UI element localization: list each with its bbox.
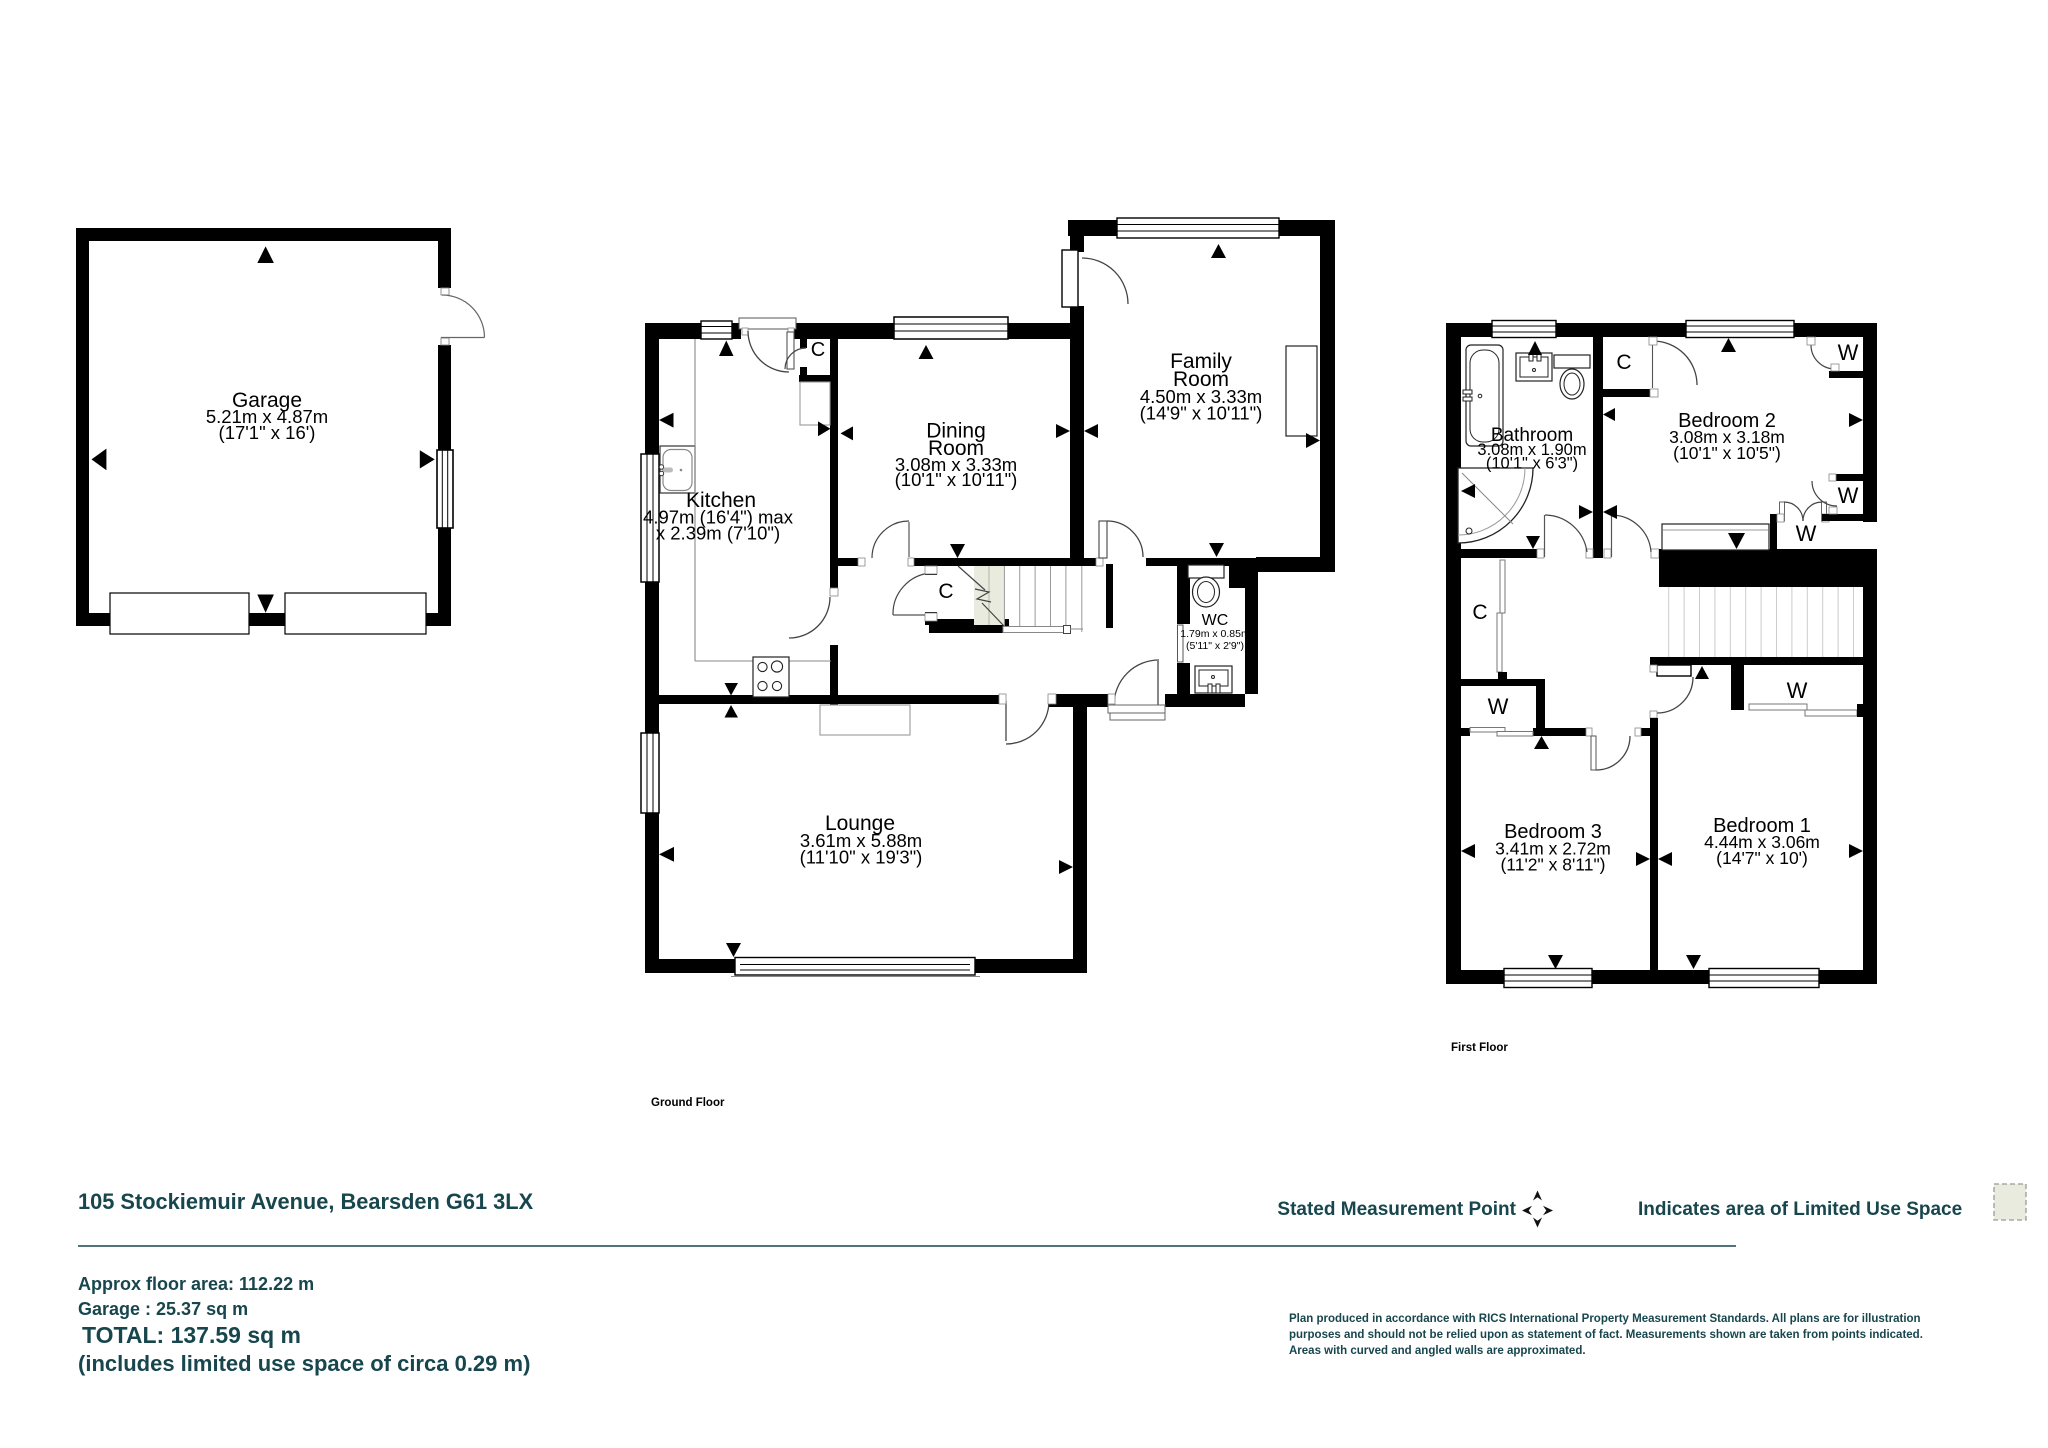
svg-text:W: W [1488, 694, 1509, 719]
svg-text:C: C [811, 339, 825, 361]
svg-text:C: C [1472, 601, 1487, 624]
svg-text:Plan produced in accordance w: Plan produced in accordance with RICS In… [1289, 1313, 1921, 1325]
svg-text:C: C [1616, 351, 1631, 374]
svg-text:TOTAL: 137.59 sq m: TOTAL: 137.59 sq m [82, 1322, 301, 1348]
svg-text:(10'1" x 10'11"): (10'1" x 10'11") [895, 469, 1018, 490]
svg-text:(14'9" x 10'11"): (14'9" x 10'11") [1140, 403, 1263, 424]
svg-text:105 Stockiemuir Avenue, Bearsd: 105 Stockiemuir Avenue, Bearsden G61 3LX [78, 1189, 534, 1214]
svg-text:Stated Measurement Point: Stated Measurement Point [1277, 1199, 1516, 1220]
svg-text:Ground Floor: Ground Floor [651, 1097, 725, 1109]
svg-text:W: W [1796, 521, 1817, 546]
svg-text:(includes limited use space of: (includes limited use space of circa 0.2… [78, 1351, 530, 1376]
svg-text:W: W [1787, 678, 1808, 703]
svg-text:W: W [1838, 340, 1859, 365]
svg-text:C: C [938, 580, 953, 603]
svg-text:(17'1" x 16'): (17'1" x 16') [219, 422, 316, 443]
svg-text:(5'11" x 2'9"): (5'11" x 2'9") [1186, 640, 1244, 652]
svg-text:x 2.39m (7'10"): x 2.39m (7'10") [656, 523, 780, 544]
svg-text:Garage : 25.37 sq m: Garage : 25.37 sq m [78, 1299, 248, 1319]
svg-text:(10'1" x 6'3"): (10'1" x 6'3") [1486, 455, 1578, 473]
svg-text:(14'7" x 10'): (14'7" x 10') [1716, 848, 1808, 868]
svg-text:W: W [1838, 483, 1859, 508]
svg-text:(10'1" x 10'5"): (10'1" x 10'5") [1673, 443, 1781, 463]
svg-text:(11'10" x 19'3"): (11'10" x 19'3") [800, 847, 923, 868]
svg-text:Approx floor area: 112.22 m: Approx floor area: 112.22 m [78, 1274, 314, 1294]
svg-text:1.79m x 0.85m: 1.79m x 0.85m [1180, 628, 1250, 640]
svg-text:Areas with curved and angled w: Areas with curved and angled walls are a… [1289, 1345, 1586, 1357]
svg-text:purposes and should not be rel: purposes and should not be relied upon a… [1289, 1329, 1923, 1341]
svg-text:WC: WC [1202, 612, 1229, 629]
svg-text:(11'2" x 8'11"): (11'2" x 8'11") [1500, 855, 1605, 875]
svg-text:First Floor: First Floor [1451, 1042, 1508, 1054]
svg-text:Indicates area of Limited Use: Indicates area of Limited Use Space [1638, 1199, 1962, 1220]
